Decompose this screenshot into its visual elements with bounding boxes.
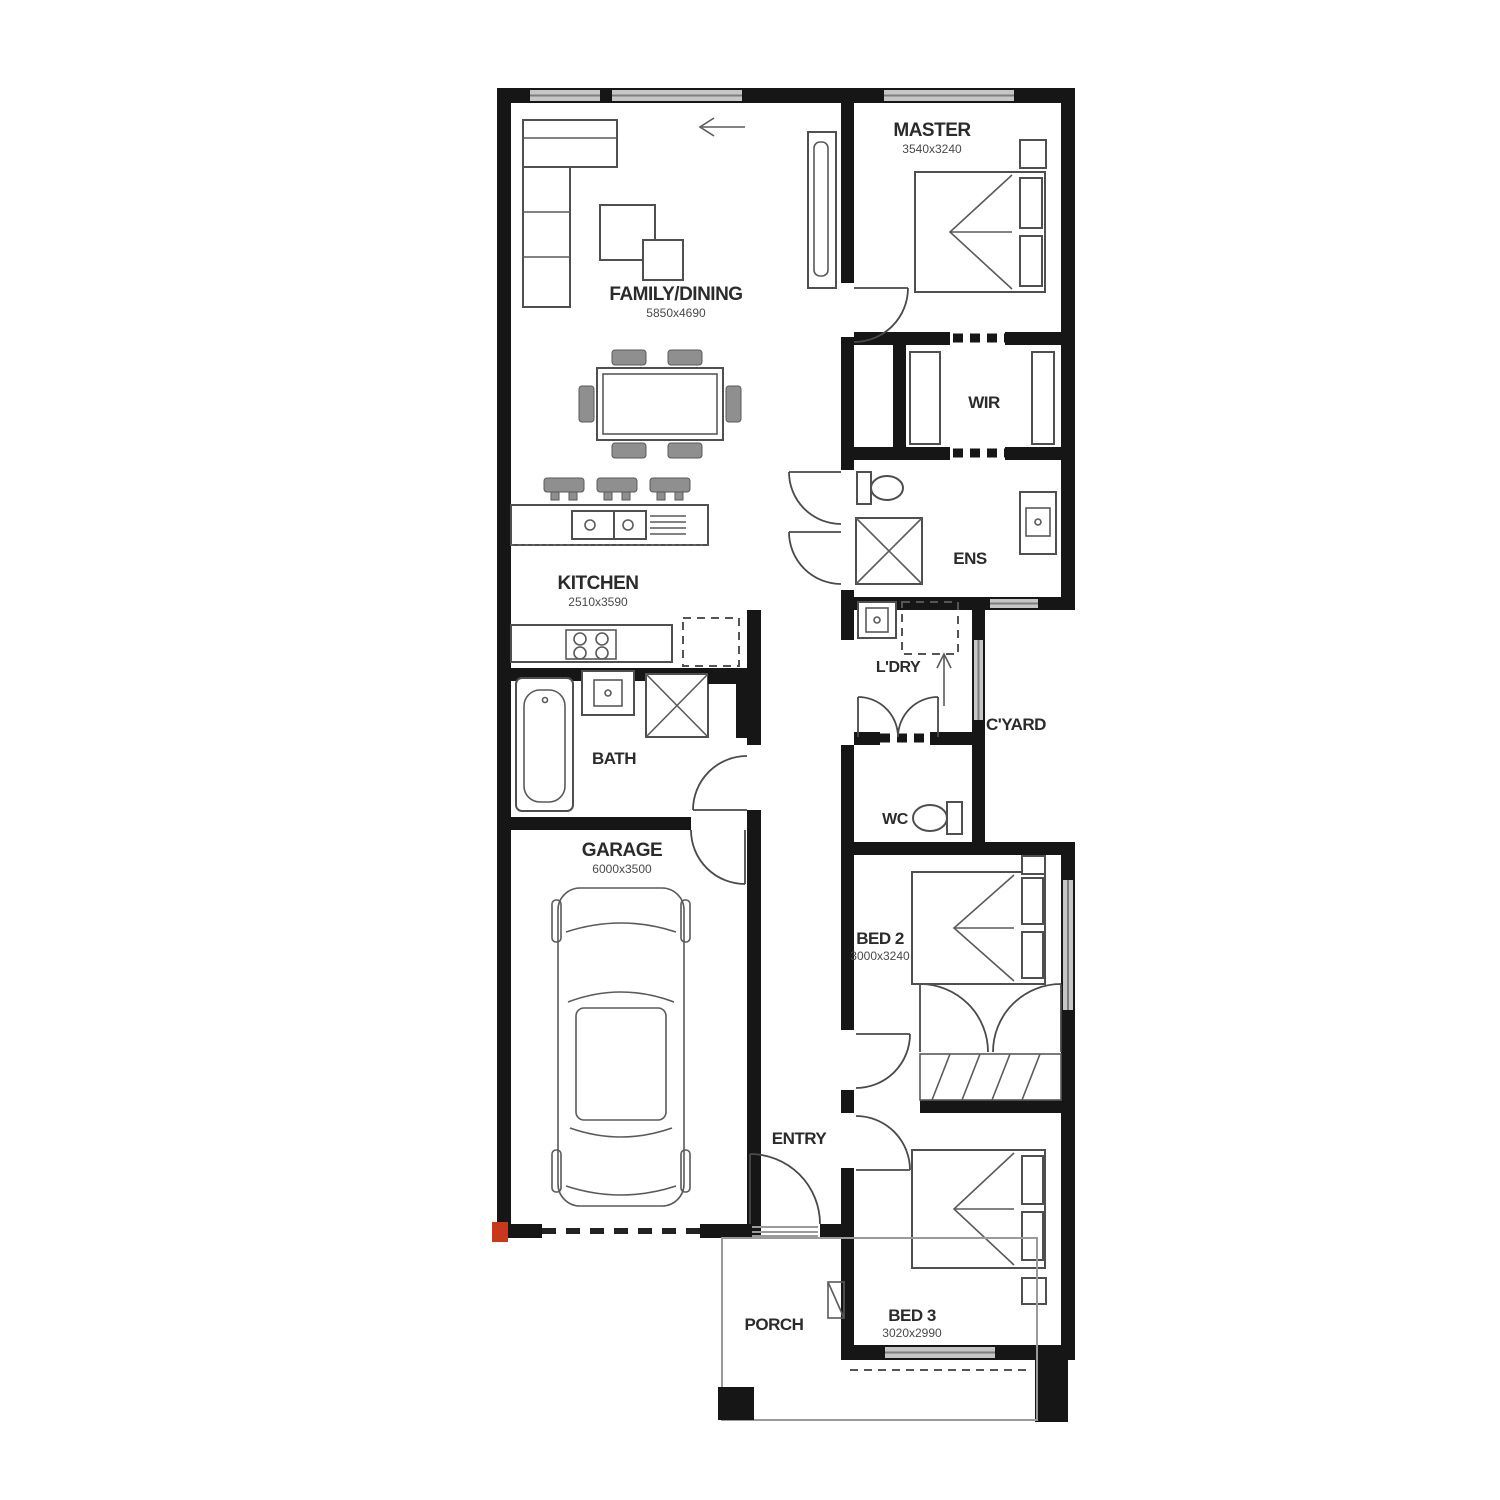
garage-dims: 6000x3500 xyxy=(592,862,652,876)
cooktop-bench xyxy=(511,625,672,662)
ensuite-door xyxy=(789,472,841,524)
doors xyxy=(691,288,1061,1236)
bar-stools xyxy=(544,478,690,500)
bed2-dims: 3000x3240 xyxy=(850,949,910,963)
wc-label: WC xyxy=(882,811,909,828)
family-dining-label: FAMILY/DINING xyxy=(609,284,742,305)
garage-label: GARAGE xyxy=(582,840,662,861)
master-furniture xyxy=(915,140,1046,292)
kitchen-fixtures xyxy=(511,478,739,666)
floor-plan-canvas: FAMILY/DINING 5850x4690 MASTER 3540x3240… xyxy=(0,0,1500,1500)
laundry-trough xyxy=(858,602,896,638)
ens-shower xyxy=(856,518,922,584)
bed3-dims: 3020x2990 xyxy=(882,1326,942,1340)
ens-vanity xyxy=(1020,492,1056,554)
wir-label: WIR xyxy=(968,393,1000,412)
bath-label: BATH xyxy=(592,749,636,768)
bed3-furniture xyxy=(912,1150,1046,1304)
ens-label: ENS xyxy=(953,549,987,568)
laundry-arrow xyxy=(937,654,951,706)
bathtub xyxy=(516,678,573,811)
pantry-dashed xyxy=(683,618,739,666)
laundry-label: L'DRY xyxy=(876,659,921,676)
wc-fixtures xyxy=(913,802,962,834)
dining-table xyxy=(579,350,741,458)
bed2-robe-doors xyxy=(920,984,1061,1052)
bed2-bedside xyxy=(1022,856,1045,874)
bath-shower xyxy=(646,674,708,737)
bed3-door xyxy=(856,1116,910,1170)
laundry-fixtures xyxy=(858,602,958,706)
bed3-label: BED 3 xyxy=(888,1306,936,1325)
car xyxy=(552,888,690,1206)
island-bench xyxy=(511,505,708,545)
garage-fixtures xyxy=(542,888,700,1231)
coffee-table xyxy=(600,205,683,280)
entry-direction-arrow xyxy=(700,118,745,136)
family-dining-dims: 5850x4690 xyxy=(646,306,706,320)
bath-fixtures xyxy=(516,671,748,811)
master-label: MASTER xyxy=(893,120,971,141)
linen-door xyxy=(789,532,841,584)
entry-label: ENTRY xyxy=(772,1129,828,1148)
bed3-bedside xyxy=(1022,1278,1046,1304)
kitchen-dims: 2510x3590 xyxy=(568,595,628,609)
laundry-double-doors xyxy=(858,697,938,737)
bath-door xyxy=(693,756,747,810)
kitchen-label: KITCHEN xyxy=(558,573,639,594)
robe-band xyxy=(920,1054,1061,1100)
master-dims: 3540x3240 xyxy=(902,142,962,156)
courtyard-label: C'YARD xyxy=(986,715,1046,734)
bed2-door xyxy=(856,1034,910,1088)
garage-door xyxy=(691,830,745,884)
bath-vanity xyxy=(582,671,634,715)
site-accent-red xyxy=(492,1222,508,1242)
bed2-furniture xyxy=(912,856,1045,984)
tall-cabinet xyxy=(808,132,836,288)
floor-plan-drawing: FAMILY/DINING 5850x4690 MASTER 3540x3240… xyxy=(0,0,1500,1500)
bed2-label: BED 2 xyxy=(856,929,904,948)
porch-label: PORCH xyxy=(745,1315,804,1334)
master-bedside xyxy=(1020,140,1046,168)
ens-toilet xyxy=(857,472,903,504)
